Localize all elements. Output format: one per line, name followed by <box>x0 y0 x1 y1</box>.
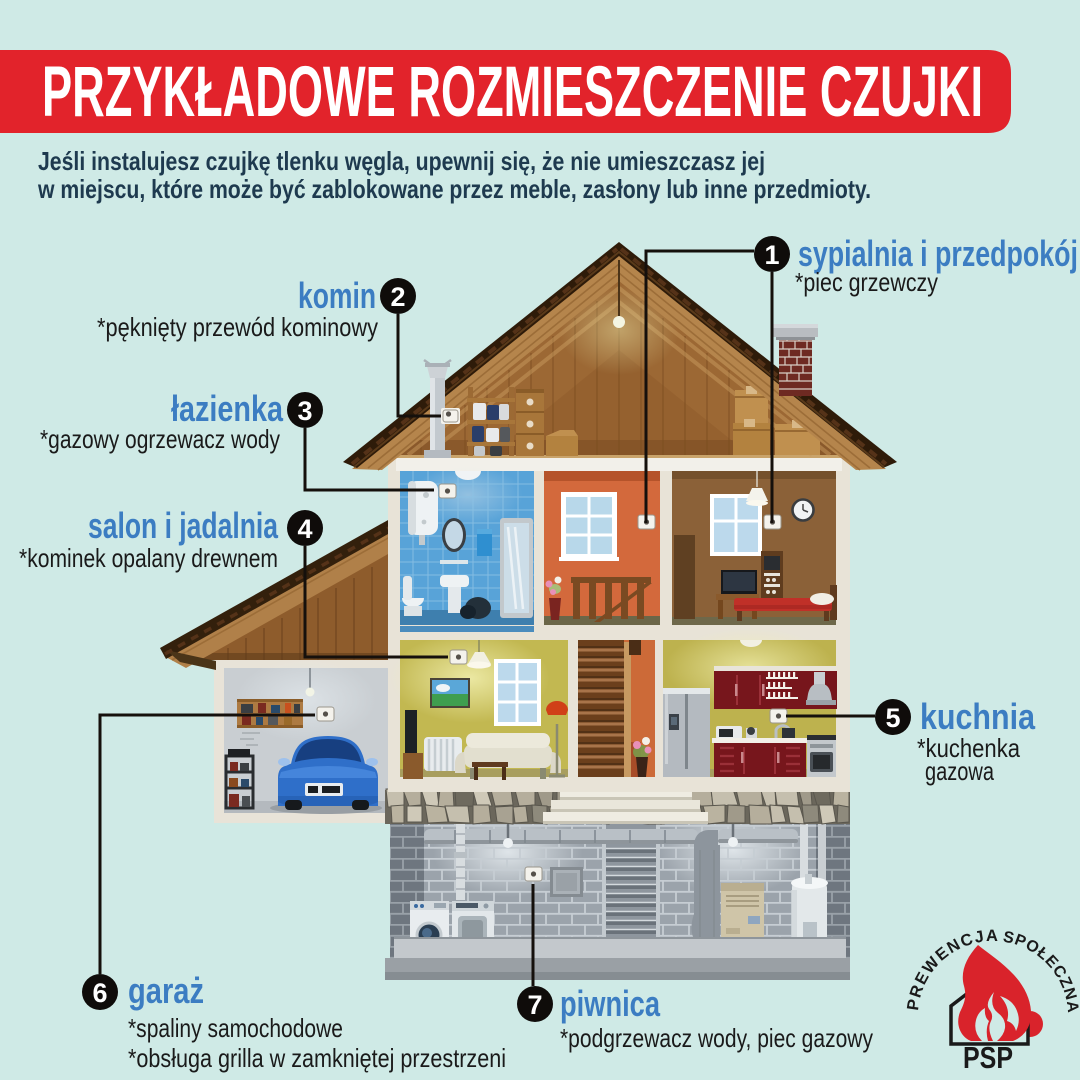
svg-text:*podgrzewacz wody, piec gazowy: *podgrzewacz wody, piec gazowy <box>560 1023 873 1053</box>
svg-text:w miejscu, które może być zabl: w miejscu, które może być zablokowane pr… <box>37 174 871 204</box>
svg-text:PRZYKŁADOWE ROZMIESZCZENIE CZU: PRZYKŁADOWE ROZMIESZCZENIE CZUJKI <box>42 53 983 132</box>
svg-text:kuchnia: kuchnia <box>920 696 1036 737</box>
svg-text:*obsługa grilla w zamkniętej p: *obsługa grilla w zamkniętej przestrzeni <box>128 1043 506 1073</box>
svg-text:piwnica: piwnica <box>560 983 661 1024</box>
svg-text:gazowa: gazowa <box>925 756 994 786</box>
svg-text:*spaliny samochodowe: *spaliny samochodowe <box>128 1013 343 1043</box>
svg-text:łazienka: łazienka <box>171 388 284 429</box>
svg-text:*kominek opalany drewnem: *kominek opalany drewnem <box>19 543 278 573</box>
svg-text:1: 1 <box>764 240 779 270</box>
svg-text:salon i jadalnia: salon i jadalnia <box>88 505 279 546</box>
svg-text:5: 5 <box>885 703 900 733</box>
svg-text:4: 4 <box>297 514 312 544</box>
svg-text:3: 3 <box>297 396 312 426</box>
svg-text:*gazowy ogrzewacz wody: *gazowy ogrzewacz wody <box>40 424 280 454</box>
svg-text:komin: komin <box>298 275 376 316</box>
svg-text:Jeśli instalujesz czujkę tlenk: Jeśli instalujesz czujkę tlenku węgla, u… <box>38 146 765 176</box>
svg-text:*piec grzewczy: *piec grzewczy <box>795 267 938 297</box>
svg-text:*pęknięty przewód kominowy: *pęknięty przewód kominowy <box>97 312 378 342</box>
svg-text:PSP: PSP <box>963 1040 1013 1075</box>
svg-text:6: 6 <box>92 978 107 1008</box>
svg-text:2: 2 <box>390 282 405 312</box>
svg-text:7: 7 <box>527 990 542 1020</box>
svg-text:garaż: garaż <box>128 970 204 1011</box>
